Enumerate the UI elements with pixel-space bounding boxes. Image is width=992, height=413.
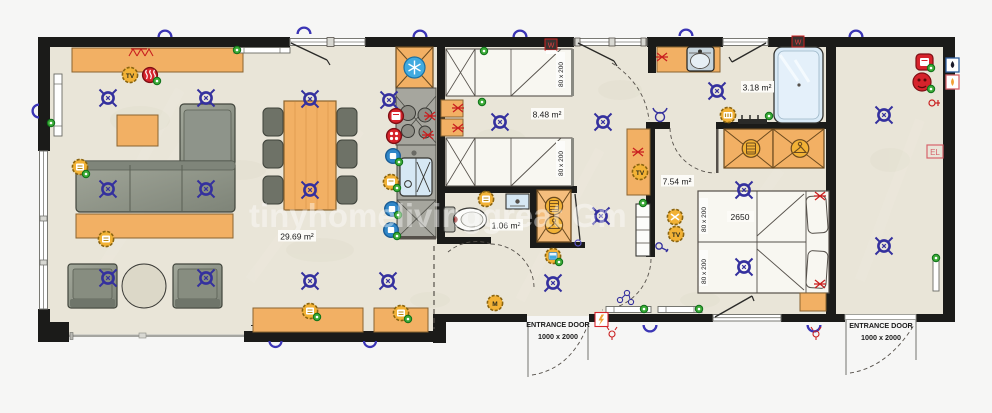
svg-text:7.54 m²: 7.54 m² [663,176,692,186]
svg-text:M: M [492,301,497,308]
svg-text:8.48 m²: 8.48 m² [533,109,562,119]
svg-text:tinyhomelivinggreat Gm: tinyhomelivinggreat Gm [249,197,627,234]
svg-text:ENTRANCE DOOR: ENTRANCE DOOR [849,321,913,330]
svg-text:TV: TV [126,73,135,80]
svg-text:EL: EL [930,148,940,157]
svg-text:80 x 200: 80 x 200 [701,259,708,284]
svg-text:TV: TV [672,232,681,239]
svg-text:ENTRANCE DOOR: ENTRANCE DOOR [526,320,590,329]
svg-text:3.18 m²: 3.18 m² [743,82,772,92]
svg-text:80 x 200: 80 x 200 [558,151,565,176]
svg-text:1000 x 2000: 1000 x 2000 [861,333,901,342]
svg-text:80 x 200: 80 x 200 [701,207,708,232]
svg-text:W: W [795,40,802,47]
svg-text:1000 x 2000: 1000 x 2000 [538,332,578,341]
svg-text:2650: 2650 [731,212,750,222]
svg-text:TV: TV [636,170,645,177]
svg-text:80 x 200: 80 x 200 [558,62,565,87]
svg-text:W: W [548,43,555,50]
